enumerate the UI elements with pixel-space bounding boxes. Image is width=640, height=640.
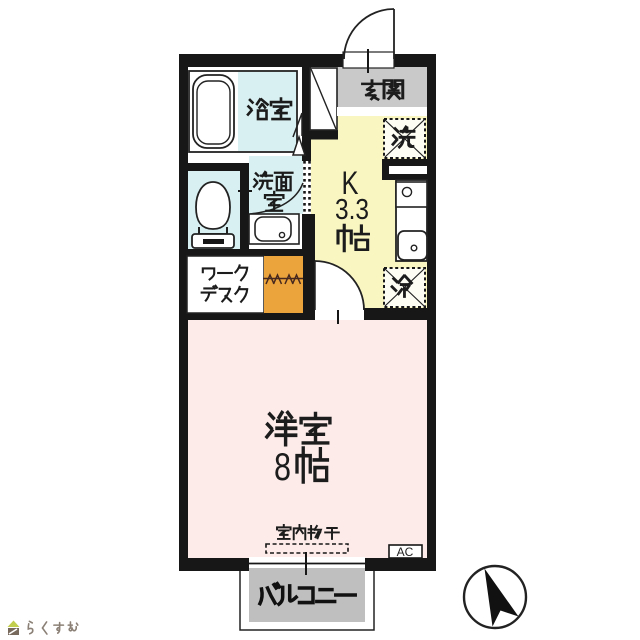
svg-text:AC: AC: [397, 545, 414, 559]
svg-text:8: 8: [274, 446, 291, 489]
svg-text:3.3: 3.3: [335, 194, 369, 226]
